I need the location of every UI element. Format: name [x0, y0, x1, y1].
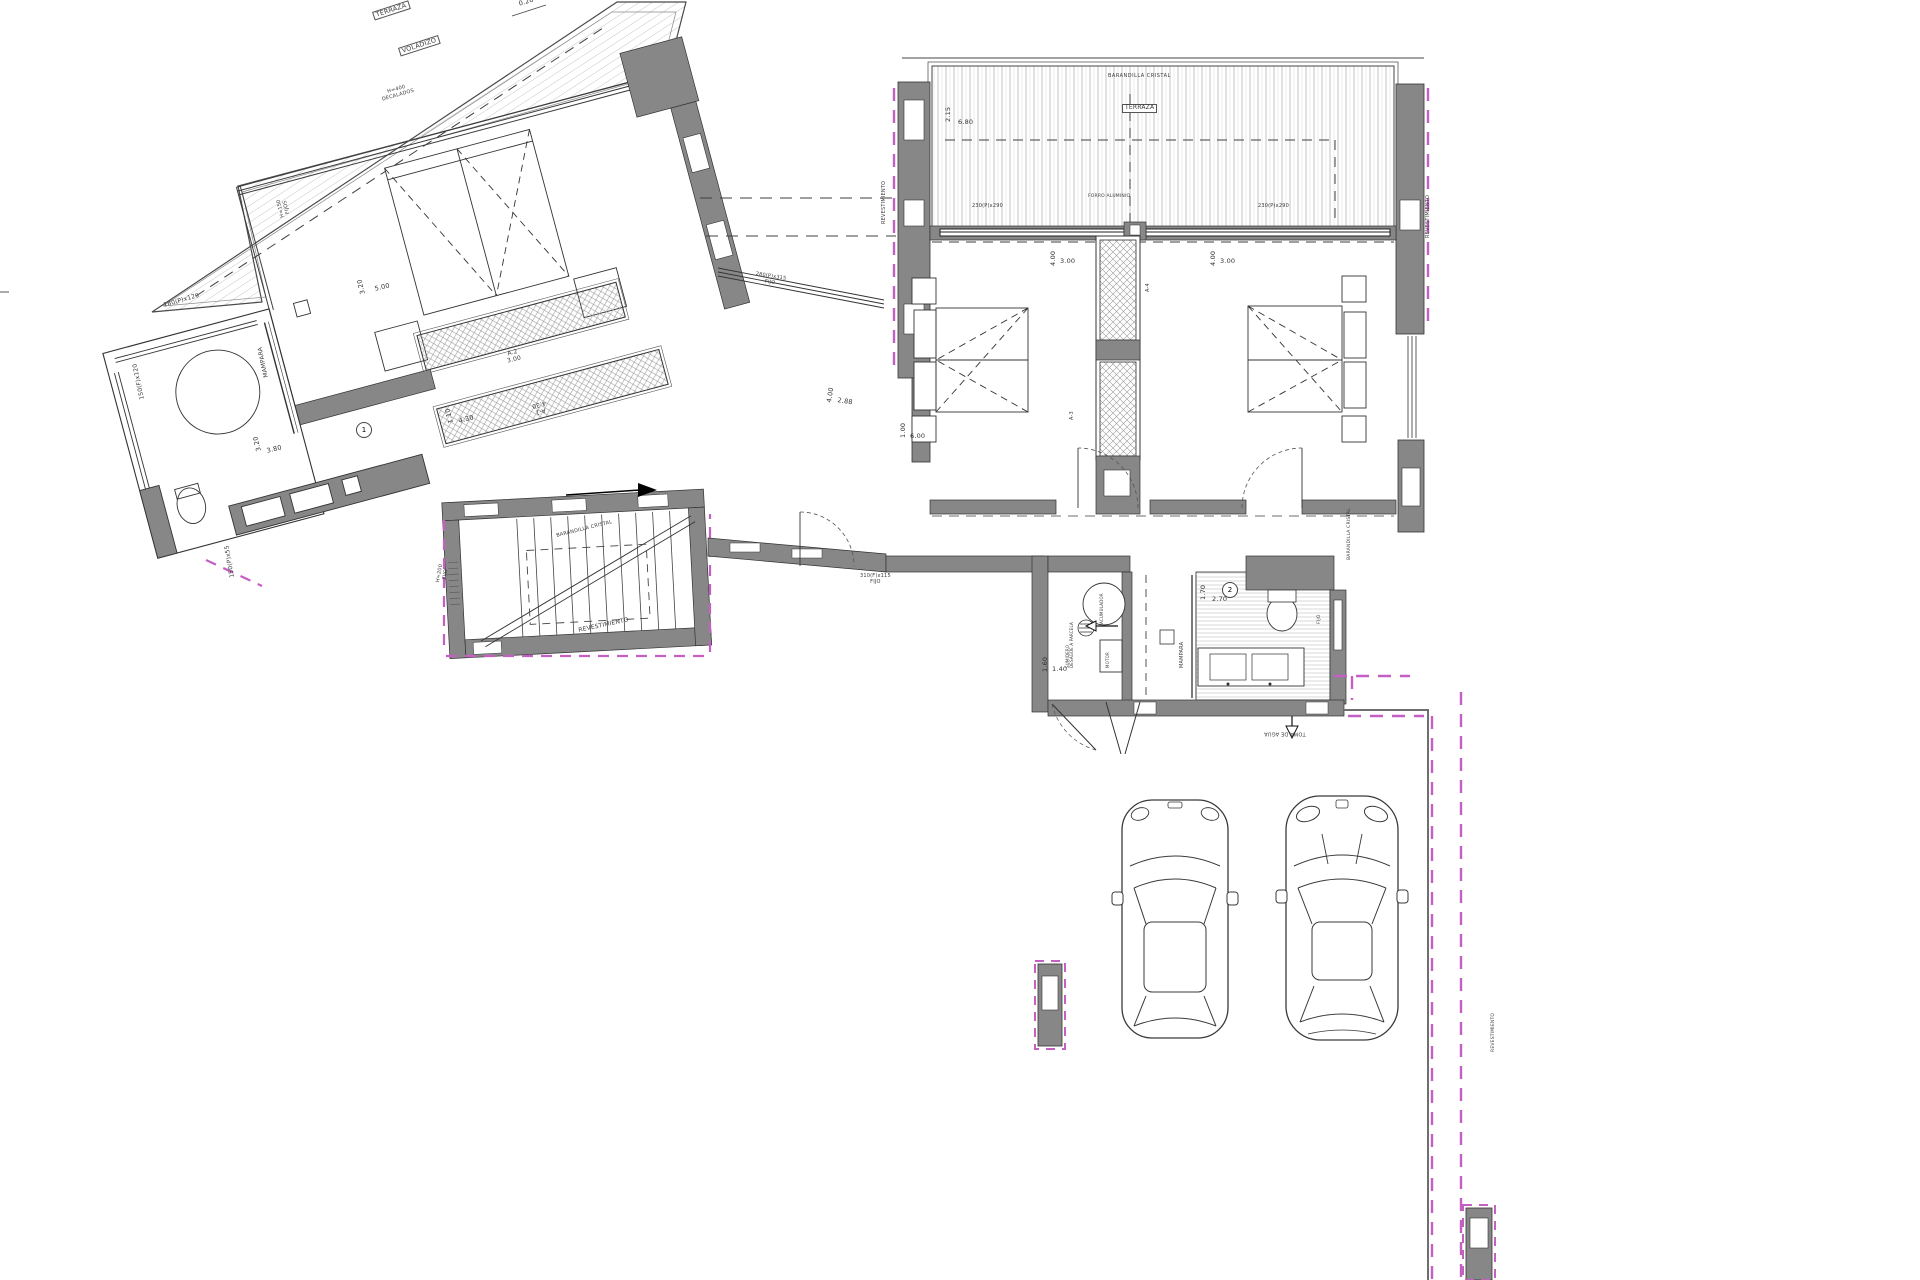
win230-b-label: 230(P)x290 — [1258, 204, 1289, 210]
mampara-right-label: MAMPARA — [1180, 642, 1186, 668]
shaft-closets — [1096, 236, 1140, 514]
win230-a-label: 230(P)x290 — [972, 204, 1003, 210]
room-1-badge: 1 — [356, 422, 372, 438]
mirror-right — [1397, 890, 1408, 903]
revestimiento-left-r: REVESTIMIENTO — [882, 181, 888, 224]
stair-treads — [517, 511, 676, 637]
fijo-right-label: FIJO — [1318, 614, 1323, 624]
barandilla-top-label: BARANDILLA CRISTAL — [1108, 74, 1171, 80]
sumidero-label: SUMIDERODESAGÜE A PARCELA — [1066, 622, 1075, 668]
dim-corr-l: 6.00 — [910, 433, 925, 440]
motor-label: MOTOR — [1106, 652, 1110, 668]
bed-2 — [1248, 276, 1366, 442]
closet-a1-label: A-14.30 — [531, 399, 548, 415]
dim-bed1-l: 3.00 — [1060, 258, 1075, 265]
dim-terr-l: 6.80 — [958, 119, 973, 126]
car-2 — [1276, 796, 1408, 1040]
barandilla-right-label: BARANDILLA CRISTAL — [1348, 508, 1353, 560]
dim-util-w: 1.60 — [1042, 657, 1049, 672]
dim-bathr-w: 1.70 — [1200, 585, 1207, 600]
revestimiento-right-r: REVESTIMIENTO — [1426, 195, 1432, 238]
toma-agua-label: TOMA DE AGUA — [1264, 730, 1306, 736]
closet-a3-label: A-3 — [1070, 411, 1076, 420]
car-1 — [1112, 800, 1238, 1038]
right-building — [886, 58, 1424, 754]
dim-bed2-w: 4.00 — [1210, 251, 1217, 266]
dim-bed2-l: 3.00 — [1220, 258, 1235, 265]
dim-020-bracket — [512, 5, 546, 16]
bath-block — [1032, 556, 1346, 754]
dim-terr-w: 2.15 — [945, 107, 952, 122]
dim-bathr-l: 2.70 — [1212, 596, 1227, 603]
acumulador-label: ACUMULADOR — [1100, 593, 1104, 624]
closet-a4-label: A-4 — [1146, 283, 1152, 292]
dim-util-l: 1.40 — [1052, 666, 1067, 673]
motor-box — [1100, 640, 1122, 672]
mirror-left — [1112, 892, 1123, 905]
bathroom-left — [103, 280, 430, 558]
floor-plan-canvas: TERRAZA VOLADIZO H=400DECALADOS H=150FIJ… — [0, 0, 1920, 1280]
mirror-right — [1227, 892, 1238, 905]
wall-east — [671, 101, 750, 309]
stair-wing — [442, 489, 712, 658]
revestimiento-pillar-label: REVESTIMIENTO — [1492, 1013, 1497, 1052]
terraza-right-label: TERRAZA — [1122, 104, 1157, 113]
dim-corr-w: 1.00 — [900, 423, 907, 438]
forro-label: FORRO ALUMINIO — [1088, 195, 1130, 200]
dim-bed1-w: 4.00 — [1050, 251, 1057, 266]
plan-drawing — [0, 0, 1920, 1280]
room-2-badge: 2 — [1222, 582, 1238, 598]
win310-label: 310(F)x115FIJO — [860, 574, 891, 585]
mirror-left — [1276, 890, 1287, 903]
left-wing — [63, 37, 777, 558]
